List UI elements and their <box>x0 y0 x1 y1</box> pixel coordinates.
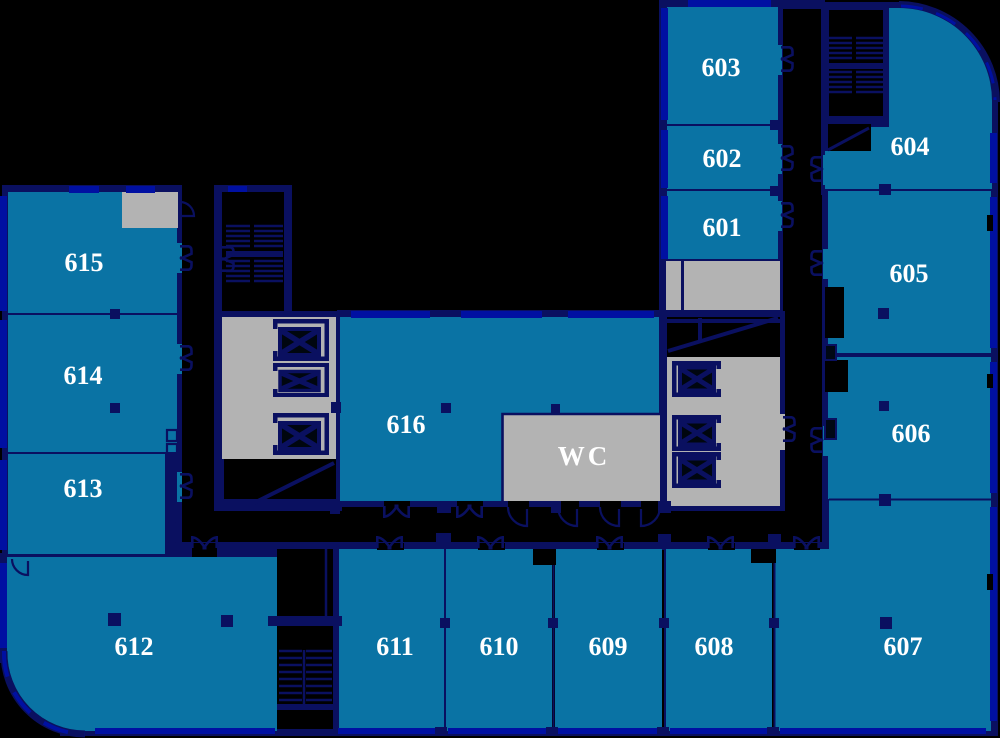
svg-text:615: 615 <box>65 248 104 277</box>
svg-text:610: 610 <box>480 632 519 661</box>
svg-text:612: 612 <box>115 632 154 661</box>
svg-text:609: 609 <box>589 632 628 661</box>
svg-text:603: 603 <box>702 53 741 82</box>
svg-text:613: 613 <box>64 474 103 503</box>
svg-text:614: 614 <box>64 361 103 390</box>
svg-text:616: 616 <box>387 410 426 439</box>
svg-text:611: 611 <box>376 632 414 661</box>
svg-text:604: 604 <box>891 132 930 161</box>
svg-text:607: 607 <box>884 632 923 661</box>
svg-text:606: 606 <box>892 419 931 448</box>
svg-text:608: 608 <box>695 632 734 661</box>
svg-text:601: 601 <box>703 213 742 242</box>
svg-text:WC: WC <box>558 441 611 471</box>
svg-text:605: 605 <box>890 259 929 288</box>
svg-text:602: 602 <box>703 144 742 173</box>
